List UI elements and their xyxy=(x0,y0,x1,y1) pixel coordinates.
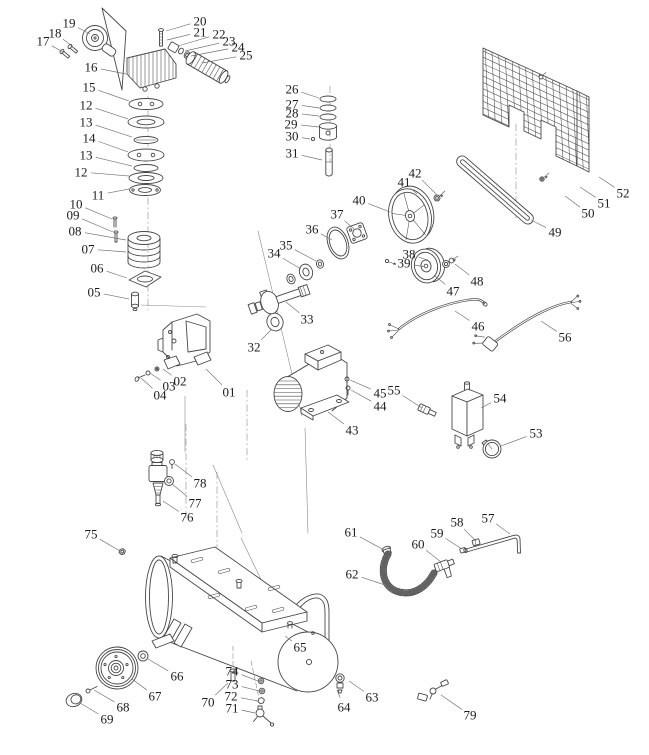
part-label-56: 56 xyxy=(559,329,573,344)
part-label-58: 58 xyxy=(451,514,464,529)
part-label-12: 12 xyxy=(80,97,93,112)
part-label-35: 35 xyxy=(280,237,293,252)
part-label-65: 65 xyxy=(294,639,307,654)
leader-line-30 xyxy=(302,138,310,139)
leader-line-77 xyxy=(172,484,187,497)
part-label-36: 36 xyxy=(306,221,320,236)
part-label-49: 49 xyxy=(549,224,562,239)
leader-line-29 xyxy=(301,125,319,127)
part-label-53: 53 xyxy=(530,425,543,440)
part-label-77: 77 xyxy=(189,495,203,510)
cylinder-head xyxy=(127,44,176,96)
leader-line-67 xyxy=(132,679,147,690)
part-label-13: 13 xyxy=(80,147,93,162)
part-label-26: 26 xyxy=(286,81,300,96)
air-filter xyxy=(83,26,118,58)
leader-line-04 xyxy=(141,378,153,388)
leader-line-17 xyxy=(52,46,63,52)
part-label-16: 16 xyxy=(85,59,99,74)
part-label-69: 69 xyxy=(101,711,114,726)
leader-line-12 xyxy=(91,173,129,176)
leader-line-24 xyxy=(191,49,228,56)
pulley-washers-48 xyxy=(443,256,458,267)
valve-plate-37 xyxy=(346,222,368,244)
part-label-01: 01 xyxy=(223,384,236,399)
leader-line-06 xyxy=(106,271,127,278)
leader-line-13 xyxy=(96,125,132,137)
diagram-canvas: 1918171615121314131211100908070605202122… xyxy=(0,0,649,755)
leader-line-20 xyxy=(166,24,190,31)
leader-line-59 xyxy=(445,538,462,549)
filter-screw-17 xyxy=(59,49,70,59)
leader-line-66 xyxy=(148,659,168,671)
part-label-31: 31 xyxy=(286,145,299,160)
part-label-06: 06 xyxy=(91,260,105,275)
leader-line-10 xyxy=(85,208,112,219)
wheel-washer-66 xyxy=(138,651,148,661)
drive-belt xyxy=(454,154,535,227)
regulator-screw-78 xyxy=(170,460,175,469)
leader-line-26 xyxy=(301,92,319,98)
part-label-76: 76 xyxy=(181,509,195,524)
leader-line-63 xyxy=(349,681,364,691)
intake-silencer xyxy=(184,50,232,86)
leader-line-46 xyxy=(455,311,470,321)
leader-line-51 xyxy=(580,187,596,197)
leader-line-09 xyxy=(82,219,113,232)
leader-line-56 xyxy=(541,321,557,331)
flywheel xyxy=(382,181,440,248)
crankcase-bolts-02-04 xyxy=(134,367,159,382)
part-label-39: 39 xyxy=(398,255,411,270)
part-label-67: 67 xyxy=(149,688,163,703)
part-label-11: 11 xyxy=(92,187,105,202)
leader-line-53 xyxy=(501,436,527,446)
part-label-12: 12 xyxy=(75,164,88,179)
pressure-gauge xyxy=(482,440,501,458)
piston xyxy=(320,123,337,140)
leader-line-78 xyxy=(175,464,192,477)
leader-line-28 xyxy=(302,114,319,116)
leader-line-12 xyxy=(95,108,128,119)
part-label-37: 37 xyxy=(331,206,345,221)
leader-line-05 xyxy=(104,294,129,299)
head-bolt-20-21 xyxy=(158,29,163,46)
wheel xyxy=(96,647,138,689)
part-label-41: 41 xyxy=(398,174,411,189)
part-label-07: 07 xyxy=(82,241,96,256)
part-label-45: 45 xyxy=(374,385,387,400)
nut-75 xyxy=(119,549,125,555)
part-label-19: 19 xyxy=(63,15,76,30)
leader-line-16 xyxy=(101,69,126,74)
flywheel-nut-42 xyxy=(434,191,445,201)
part-label-33: 33 xyxy=(301,311,314,326)
leader-line-21 xyxy=(167,34,190,40)
leader-line-32 xyxy=(261,329,272,340)
part-label-46: 46 xyxy=(472,318,486,333)
part-label-17: 17 xyxy=(37,33,51,48)
leader-line-50 xyxy=(565,196,580,207)
breather-plug xyxy=(132,292,139,310)
leader-line-31 xyxy=(302,155,322,160)
drain-valve-stack xyxy=(251,661,274,726)
part-label-78: 78 xyxy=(194,475,207,490)
pressure-switch xyxy=(452,382,483,449)
piston-pin-clip xyxy=(311,137,314,140)
bearing-34 xyxy=(297,262,314,281)
discharge-hose xyxy=(383,554,434,593)
filter-screw-18 xyxy=(67,44,78,54)
pulley-key-bolt xyxy=(385,259,396,264)
piston-rings xyxy=(320,96,336,120)
bearing-32 xyxy=(264,311,285,333)
tee-fitting-79 xyxy=(417,679,448,701)
motor xyxy=(272,345,349,420)
leader-line-15 xyxy=(98,90,129,101)
part-label-66: 66 xyxy=(171,668,185,683)
part-label-40: 40 xyxy=(353,192,366,207)
part-label-79: 79 xyxy=(464,707,477,722)
leader-line-74 xyxy=(241,675,258,681)
leader-line-58 xyxy=(464,529,476,541)
part-label-57: 57 xyxy=(482,510,496,525)
leader-line-69 xyxy=(80,703,98,714)
leader-line-68 xyxy=(94,690,114,702)
part-label-62: 62 xyxy=(346,566,359,581)
part-label-04: 04 xyxy=(154,387,168,402)
shaft-seal xyxy=(286,273,297,285)
part-label-21: 21 xyxy=(194,24,207,39)
leader-line-07 xyxy=(98,250,126,252)
part-label-25: 25 xyxy=(240,47,253,62)
part-label-54: 54 xyxy=(494,390,508,405)
leader-line-55 xyxy=(402,395,422,408)
part-label-44: 44 xyxy=(374,398,388,413)
leader-line-27 xyxy=(302,105,319,108)
leader-line-33 xyxy=(286,302,299,313)
leader-line-48 xyxy=(455,264,469,275)
cylinder xyxy=(128,232,160,269)
part-label-14: 14 xyxy=(83,130,97,145)
leader-line-11 xyxy=(108,189,129,193)
leader-line-08 xyxy=(85,233,126,240)
leader-line-01 xyxy=(206,369,222,385)
part-label-09: 09 xyxy=(67,207,80,222)
leader-line-52 xyxy=(599,177,615,187)
crankcase xyxy=(158,314,211,369)
part-label-61: 61 xyxy=(345,524,358,539)
exploded-parts-diagram: 1918171615121314131211100908070605202122… xyxy=(0,0,649,755)
leader-line-35 xyxy=(295,250,316,261)
part-label-63: 63 xyxy=(366,689,379,704)
pressure-regulator xyxy=(149,450,174,505)
part-label-05: 05 xyxy=(88,284,101,299)
part-label-30: 30 xyxy=(286,128,299,143)
leader-line-14 xyxy=(98,141,128,152)
leader-line-40 xyxy=(368,204,390,212)
leader-line-49 xyxy=(531,220,546,228)
part-label-55: 55 xyxy=(388,382,401,397)
leader-line-03 xyxy=(150,373,161,380)
nut-35 xyxy=(315,259,324,269)
part-label-59: 59 xyxy=(431,525,444,540)
part-label-32: 32 xyxy=(248,339,261,354)
part-label-71: 71 xyxy=(226,700,239,715)
leader-line-57 xyxy=(496,524,510,534)
tank-platform xyxy=(170,547,307,632)
wheel-bolt-68 xyxy=(86,687,97,694)
leader-line-13 xyxy=(96,157,132,166)
part-label-47: 47 xyxy=(447,283,461,298)
part-label-15: 15 xyxy=(83,79,96,94)
part-label-18: 18 xyxy=(49,25,62,40)
hose-elbow-60 xyxy=(434,558,458,581)
part-label-60: 60 xyxy=(412,536,425,551)
part-label-51: 51 xyxy=(598,195,611,210)
part-label-52: 52 xyxy=(617,185,630,200)
leader-line-45 xyxy=(350,380,371,389)
leader-line-76 xyxy=(163,501,179,511)
valve-plate-stack xyxy=(128,99,164,184)
drain-cock xyxy=(254,706,274,726)
leader-line-44 xyxy=(351,390,371,401)
leader-line-23 xyxy=(185,43,219,51)
part-label-64: 64 xyxy=(338,699,352,714)
leader-line-61 xyxy=(360,537,384,550)
nut-58 xyxy=(472,539,480,546)
leader-line-79 xyxy=(441,695,462,709)
leader-line-72 xyxy=(241,698,258,701)
leader-line-34 xyxy=(283,258,301,269)
part-label-34: 34 xyxy=(268,245,282,260)
wheel-cap-69 xyxy=(64,691,83,709)
leader-line-75 xyxy=(100,539,120,551)
leader-line-18 xyxy=(63,39,72,46)
fitting-55 xyxy=(418,404,437,418)
leader-line-71 xyxy=(242,710,255,713)
part-label-75: 75 xyxy=(85,526,98,541)
part-label-70: 70 xyxy=(202,694,215,709)
head-gasket-11 xyxy=(130,185,161,196)
grille-screw-bottom xyxy=(540,173,549,181)
part-label-48: 48 xyxy=(471,273,484,288)
cylinder-gasket xyxy=(129,271,161,287)
part-label-08: 08 xyxy=(69,223,82,238)
leader-line-60 xyxy=(426,550,441,562)
leader-line-43 xyxy=(328,412,344,424)
part-label-43: 43 xyxy=(346,422,359,437)
leader-line-02 xyxy=(163,369,172,375)
part-label-50: 50 xyxy=(582,205,595,220)
check-valve-pipe-57 xyxy=(463,535,520,553)
piston-pin xyxy=(326,148,332,176)
part-label-68: 68 xyxy=(117,699,130,714)
part-label-13: 13 xyxy=(80,114,93,129)
